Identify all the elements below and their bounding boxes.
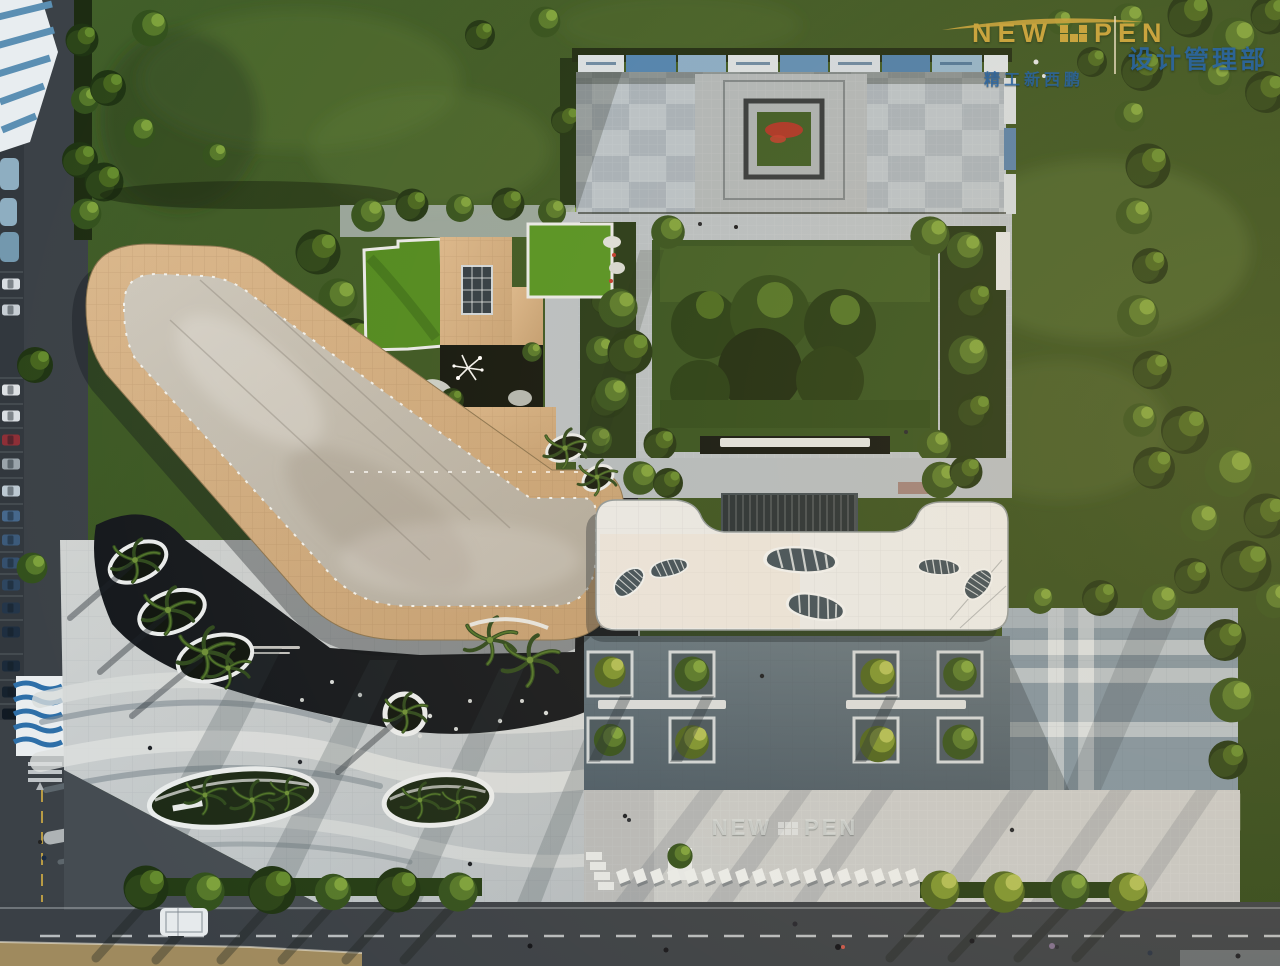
department-label: 设计管理部 bbox=[1128, 40, 1268, 76]
brand-swoosh-icon bbox=[938, 14, 1148, 34]
watermark-divider bbox=[1114, 16, 1116, 74]
watermark: NEW PEN 精工新西鹏 设计管理部 bbox=[938, 14, 1268, 104]
scene-canvas bbox=[0, 0, 1280, 966]
warm-light-overlay bbox=[0, 0, 1280, 966]
ground-logo-blocks-icon bbox=[778, 822, 798, 835]
brand-tagline: 精工新西鹏 bbox=[984, 66, 1084, 90]
ground-logo-pen: PEN bbox=[804, 815, 858, 841]
ground-logo: NEW PEN bbox=[700, 815, 870, 841]
ground-logo-new: NEW bbox=[712, 815, 772, 841]
aerial-photo: NEW PEN NEW PEN 精工新西鹏 设计管理部 bbox=[0, 0, 1280, 966]
